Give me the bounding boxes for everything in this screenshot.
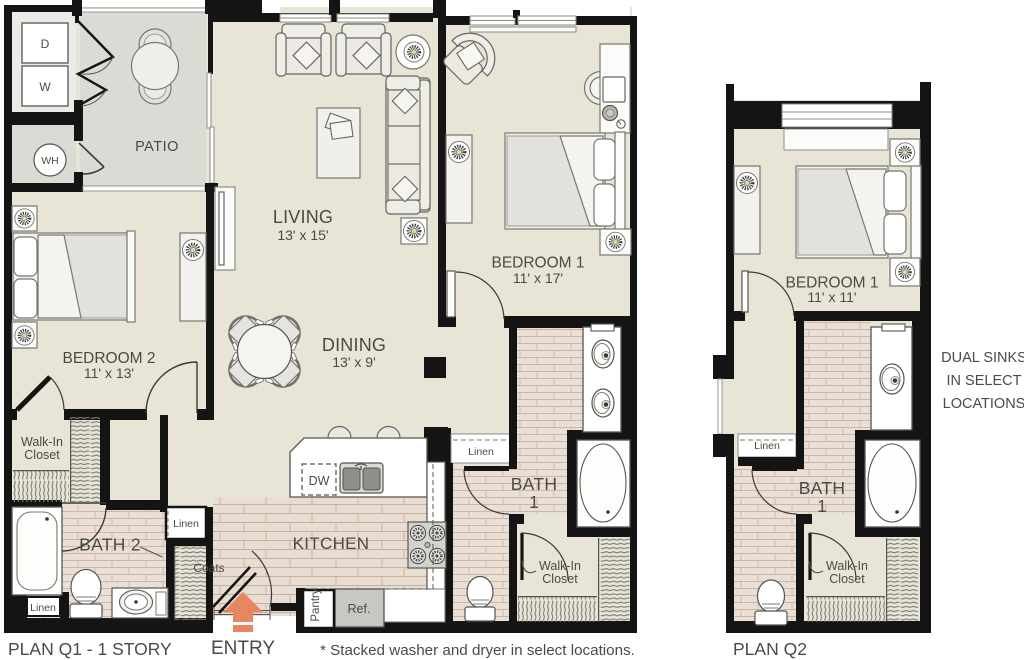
svg-text:Walk-In: Walk-In: [21, 435, 63, 449]
svg-text:Ref.: Ref.: [348, 602, 371, 616]
svg-text:13' x 15': 13' x 15': [277, 227, 328, 243]
svg-text:DINING: DINING: [322, 335, 386, 355]
svg-text:DUAL SINKS: DUAL SINKS: [941, 350, 1024, 366]
svg-text:1: 1: [817, 496, 827, 516]
svg-text:11' x 17': 11' x 17': [513, 270, 563, 286]
svg-text:11' x 13': 11' x 13': [84, 365, 134, 381]
svg-text:PLAN Q1 - 1 STORY: PLAN Q1 - 1 STORY: [8, 639, 172, 659]
svg-text:Linen: Linen: [468, 446, 494, 458]
svg-text:Linen: Linen: [30, 602, 56, 614]
svg-text:W: W: [39, 80, 51, 94]
svg-text:DW: DW: [309, 474, 330, 488]
svg-text:WH: WH: [41, 155, 59, 167]
svg-text:Closet: Closet: [829, 572, 865, 586]
svg-text:IN SELECT: IN SELECT: [947, 373, 1022, 389]
svg-text:PATIO: PATIO: [135, 139, 179, 155]
svg-text:BEDROOM 1: BEDROOM 1: [491, 255, 584, 272]
svg-text:BATH: BATH: [799, 478, 846, 498]
svg-text:KITCHEN: KITCHEN: [293, 534, 370, 553]
svg-text:Walk-In: Walk-In: [826, 559, 868, 573]
svg-text:Closet: Closet: [24, 448, 60, 462]
svg-text:Closet: Closet: [542, 572, 578, 586]
svg-text:LOCATIONS: LOCATIONS: [943, 396, 1024, 412]
svg-text:Walk-In: Walk-In: [539, 559, 581, 573]
svg-text:ENTRY: ENTRY: [211, 638, 275, 659]
svg-text:LIVING: LIVING: [273, 207, 333, 227]
svg-text:Pantry: Pantry: [310, 588, 322, 621]
svg-text:Linen: Linen: [754, 440, 780, 452]
svg-text:BATH: BATH: [511, 474, 558, 494]
svg-text:BATH 2: BATH 2: [79, 535, 141, 555]
svg-text:PLAN Q2: PLAN Q2: [733, 639, 807, 659]
svg-text:* Stacked washer and dryer in: * Stacked washer and dryer in select loc…: [320, 642, 635, 659]
svg-text:Linen: Linen: [173, 518, 199, 530]
svg-text:Coats: Coats: [193, 561, 224, 575]
svg-text:11' x 11': 11' x 11': [807, 289, 856, 305]
svg-text:13' x 9': 13' x 9': [332, 354, 375, 370]
svg-text:D: D: [41, 37, 50, 51]
svg-text:1: 1: [529, 492, 539, 512]
